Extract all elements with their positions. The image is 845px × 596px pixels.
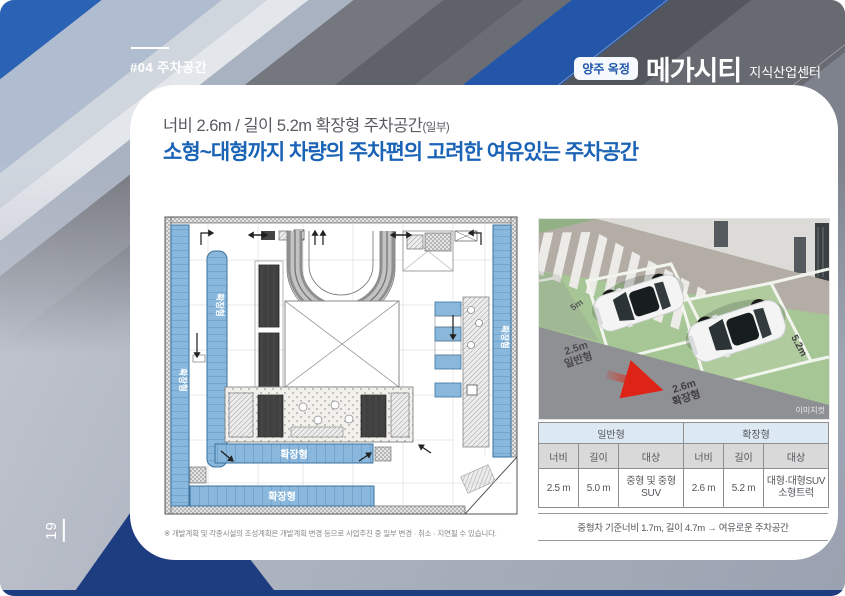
table-cell: 5.2 m [724, 469, 764, 508]
plan-label-expanded-col2: 확장형 [215, 293, 225, 316]
headline-sub-small: (일부) [422, 122, 449, 134]
headline-main: 소형~대형까지 차량의 주차편의 고려한 여유있는 주차공간 [163, 139, 638, 167]
spec-table: 일반형 확장형 너비 길이 대상 너비 길이 대상 2.5 m 5.0 m 중형… [538, 422, 829, 508]
slide: #04 주차공간 양주 옥정 메가시티 지식산업센터 너비 2.6m / 길이 … [0, 0, 845, 596]
plan-label-expanded-left: 확장형 [178, 368, 188, 391]
table-group-general: 일반형 [539, 423, 684, 444]
page-number-text: 19 [43, 519, 65, 542]
brand-name: 메가시티 [646, 49, 741, 88]
headline: 너비 2.6m / 길이 5.2m 확장형 주차공간(일부) 소형~대형까지 차… [163, 115, 638, 168]
plan-label-expanded-row1: 확장형 [280, 448, 308, 461]
table-cell: 2.6 m [684, 469, 724, 508]
spec-table-block: 일반형 확장형 너비 길이 대상 너비 길이 대상 2.5 m 5.0 m 중형… [538, 422, 828, 541]
brand-block: 양주 옥정 메가시티 지식산업센터 [574, 49, 821, 88]
headline-sub: 너비 2.6m / 길이 5.2m 확장형 주차공간(일부) [163, 115, 638, 137]
section-tag: #04 주차공간 [130, 57, 207, 76]
plan-footnote: ※ 개발계획 및 각종시설의 조성계획은 개발계획 변경 등으로 사업추진 중 … [164, 528, 497, 539]
parking-photo: 5m 2.5m 일반형 2.6m 확장형 5.2m 이미지컷 [538, 218, 830, 420]
table-group-expanded: 확장형 [684, 423, 829, 444]
brand-location-badge: 양주 옥정 [574, 57, 638, 80]
page-number: 19 [43, 519, 60, 542]
headline-sub-text: 너비 2.6m / 길이 5.2m 확장형 주차공간 [163, 117, 422, 135]
bottom-navy-bar [0, 590, 845, 596]
table-col-header: 너비 [539, 444, 579, 469]
table-cell: 2.5 m [539, 469, 579, 508]
table-cell: 중형 및 중형 SUV [619, 469, 684, 508]
brand-suffix: 지식산업센터 [749, 62, 821, 81]
table-note: 중형차 기준너비 1.7m, 길이 4.7m → 여유로운 주차공간 [538, 513, 828, 541]
floorplan-drawing: 확장형 확장형 [163, 215, 520, 517]
plan-label-expanded-row2: 확장형 [268, 490, 296, 503]
table-col-header: 길이 [724, 444, 764, 469]
table-cell: 5.0 m [579, 469, 619, 508]
table-col-header: 길이 [579, 444, 619, 469]
table-col-header: 대상 [764, 444, 829, 469]
table-cell: 대형·대형SUV 소형트럭 [764, 469, 829, 508]
photo-watermark: 이미지컷 [796, 405, 825, 415]
table-col-header: 대상 [619, 444, 684, 469]
table-row: 2.5 m 5.0 m 중형 및 중형 SUV 2.6 m 5.2 m 대형·대… [539, 469, 829, 508]
content-card: 너비 2.6m / 길이 5.2m 확장형 주차공간(일부) 소형~대형까지 차… [130, 85, 838, 560]
plan-label-expanded-right: 확장형 [500, 325, 510, 348]
table-col-header: 너비 [684, 444, 724, 469]
